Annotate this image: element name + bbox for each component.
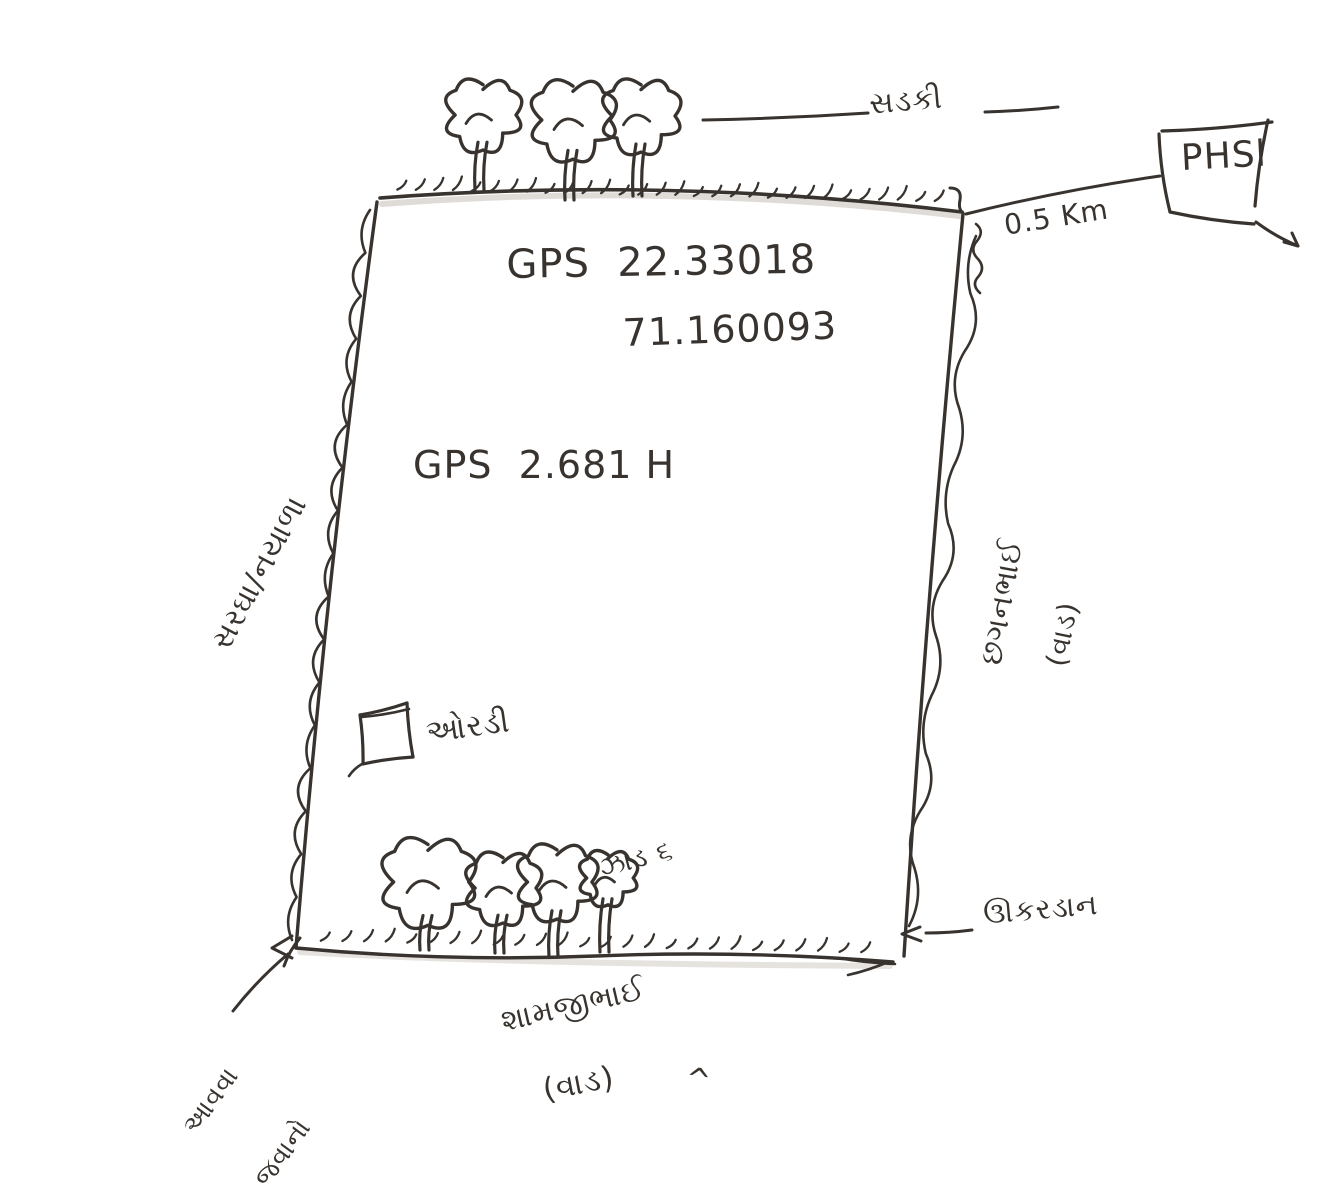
caret-mark: ^ [683,1062,714,1100]
boundary-hatching [288,177,982,953]
access-path-line1: આવવા [153,1028,271,1175]
gps-coordinates-line1: GPS 22.33018 [506,237,817,288]
sketch-page: સડકી PHSl 0.5 Km GPS 22.33018 71.160093 … [0,0,1336,1183]
gps-coordinates-line2: 71.160093 [622,305,838,356]
access-path-line2: જવાનો [225,1080,343,1183]
gps-area-label: GPS 2.681 H [413,444,675,488]
road-label: સડકી [868,82,944,123]
hut-icon [349,703,413,776]
phs-label: PHSl [1180,134,1268,180]
